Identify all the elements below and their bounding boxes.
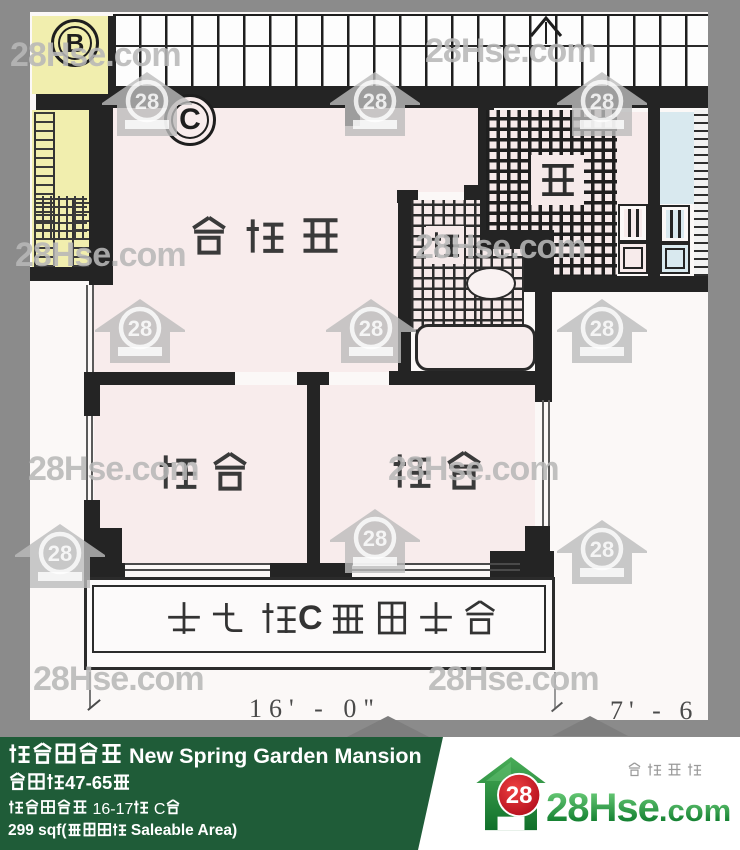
svg-text:28: 28 <box>506 782 533 809</box>
